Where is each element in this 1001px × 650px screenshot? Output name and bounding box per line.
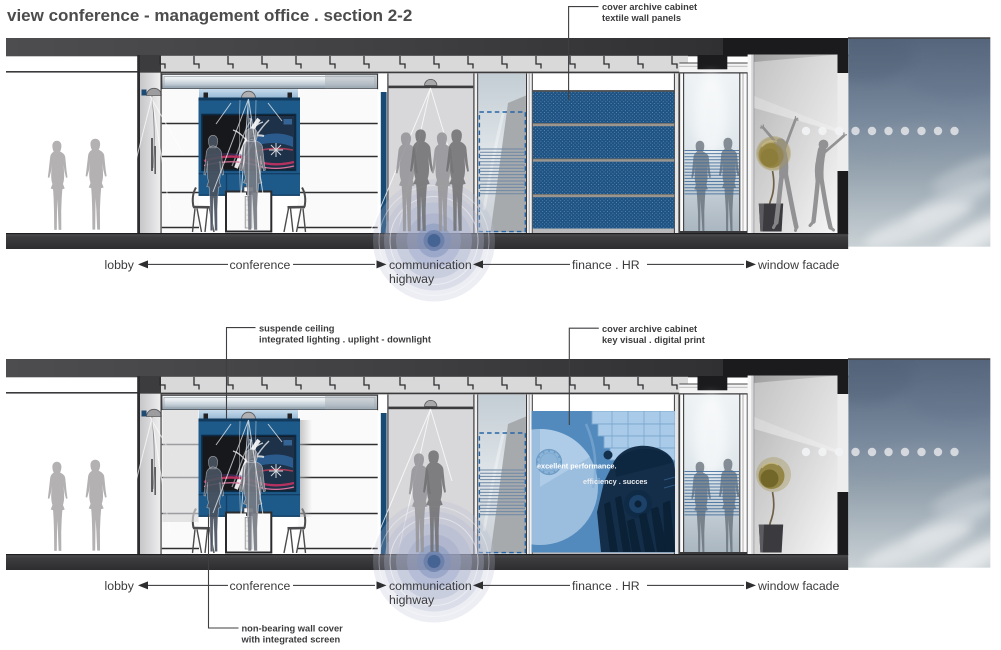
svg-text:excellent performance.: excellent performance. <box>537 462 617 471</box>
svg-text:integrated lighting . uplight: integrated lighting . uplight - downligh… <box>259 335 431 345</box>
svg-text:finance . HR: finance . HR <box>572 258 640 272</box>
svg-text:with integrated screen: with integrated screen <box>241 635 341 645</box>
svg-text:lobby: lobby <box>105 258 135 272</box>
svg-text:cover archive cabinet: cover archive cabinet <box>602 324 697 334</box>
svg-text:highway: highway <box>389 272 435 286</box>
svg-text:view conference - management o: view conference - management office . se… <box>7 6 412 25</box>
svg-text:efficiency . succes: efficiency . succes <box>583 477 648 486</box>
svg-text:window facade: window facade <box>757 258 840 272</box>
svg-text:conference: conference <box>230 258 291 272</box>
svg-text:non-bearing wall cover: non-bearing wall cover <box>242 624 344 634</box>
svg-text:communication: communication <box>389 258 472 272</box>
svg-text:key visual . digital print: key visual . digital print <box>602 335 705 345</box>
svg-text:textile wall panels: textile wall panels <box>602 13 681 23</box>
svg-text:cover archive cabinet: cover archive cabinet <box>602 2 697 12</box>
svg-text:suspende ceiling: suspende ceiling <box>259 324 335 334</box>
